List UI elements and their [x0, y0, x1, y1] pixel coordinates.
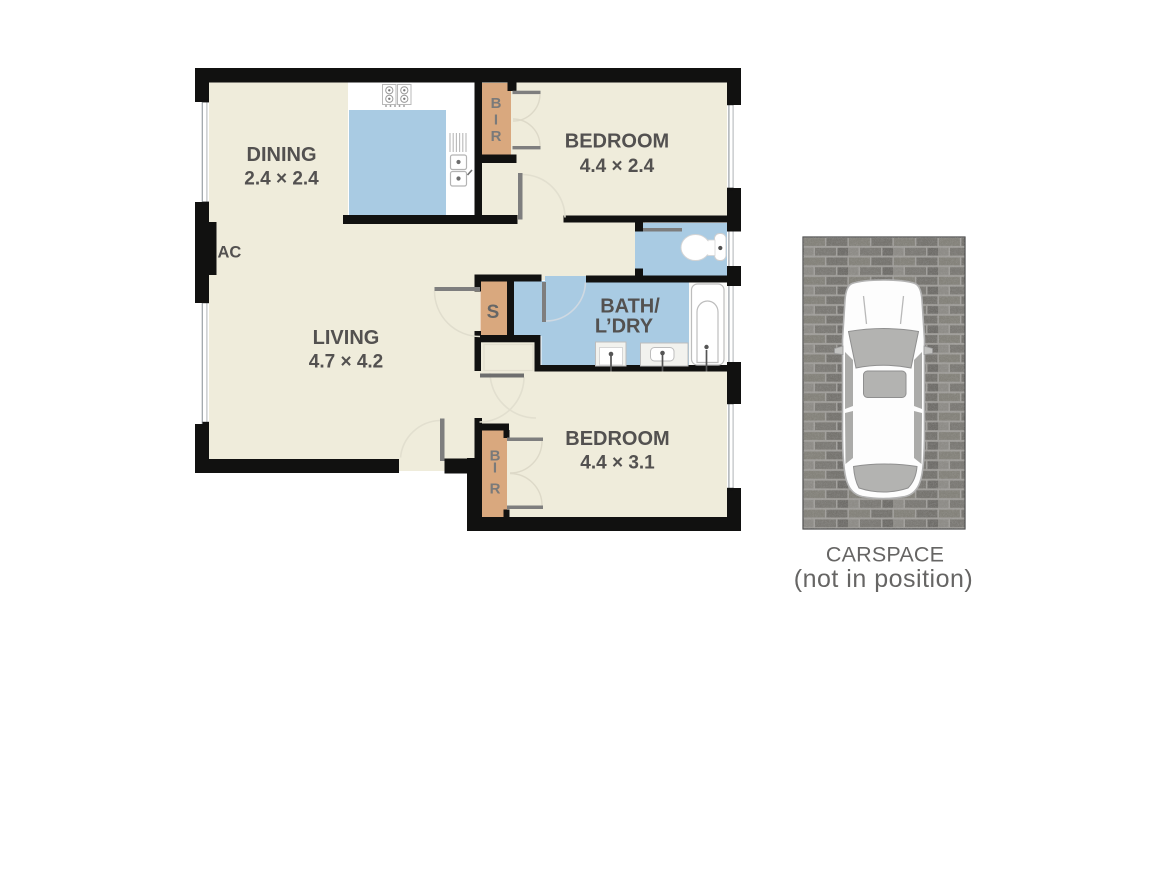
- svg-text:BEDROOM: BEDROOM: [565, 428, 669, 450]
- svg-text:AC: AC: [218, 244, 242, 262]
- svg-text:S: S: [487, 302, 500, 323]
- svg-text:LIVING: LIVING: [313, 327, 380, 349]
- svg-text:2.4 × 2.4: 2.4 × 2.4: [244, 169, 319, 190]
- svg-text:(not in position): (not in position): [794, 565, 973, 593]
- svg-text:BEDROOM: BEDROOM: [565, 131, 669, 153]
- svg-text:BATH/: BATH/: [600, 296, 660, 318]
- svg-text:R: R: [491, 128, 502, 145]
- svg-text:I: I: [494, 112, 498, 129]
- svg-text:CARSPACE: CARSPACE: [826, 543, 944, 567]
- svg-text:L’DRY: L’DRY: [595, 316, 654, 338]
- svg-text:4.4 × 3.1: 4.4 × 3.1: [580, 453, 655, 474]
- svg-text:R: R: [490, 481, 501, 498]
- svg-text:4.4 × 2.4: 4.4 × 2.4: [580, 156, 655, 177]
- svg-text:B: B: [491, 95, 502, 112]
- svg-text:4.7 × 4.2: 4.7 × 4.2: [309, 352, 383, 373]
- svg-text:I: I: [493, 460, 497, 477]
- svg-text:DINING: DINING: [247, 144, 317, 166]
